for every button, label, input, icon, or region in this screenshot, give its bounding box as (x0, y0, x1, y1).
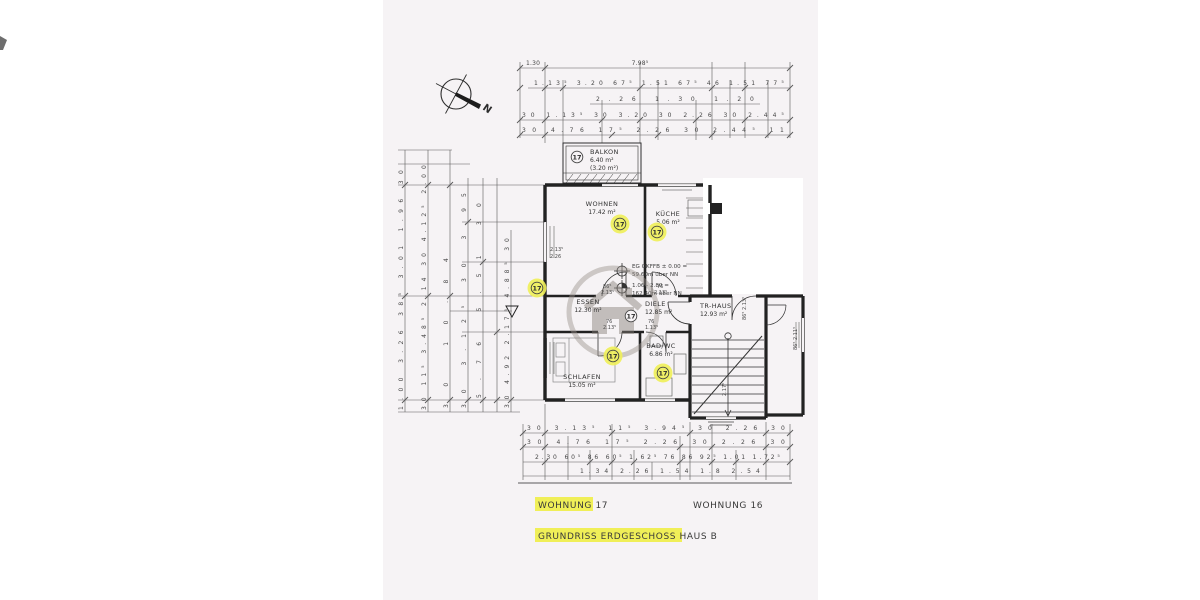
room-area-note-balkon: (3.20 m²) (590, 165, 618, 172)
room-area-wohnen: 17.42 m² (588, 209, 616, 216)
unit-badge-highlighted: 17 (648, 223, 667, 242)
scanned-floorplan-page: N 1.30 7.98⁵ 1.13⁵ 3.20 67⁵ 1.51 67⁵ 46 … (0, 0, 1200, 600)
dim-text: 7.98⁵ (632, 60, 649, 67)
room-name-balkon: BALKON (590, 148, 619, 156)
whiteout-area (703, 178, 803, 294)
size-tag: 2.13⁵ (654, 290, 667, 296)
size-tag: 2.17⁵ (722, 383, 728, 396)
unit-number: 17 (658, 370, 667, 378)
unit-badge-highlighted: 17 (654, 364, 673, 383)
unit-number: 17 (572, 154, 581, 162)
unit-badge-plain: 17 (625, 310, 637, 322)
wall-pier (710, 203, 722, 214)
size-tag: 2.26 (550, 254, 561, 260)
unit-badge-highlighted: 17 (604, 347, 623, 366)
room-area-essen: 12.30 m² (574, 307, 602, 314)
unit-number: 17 (608, 353, 617, 361)
dim-text: 1.34 2.26 1.54 1.8 2.54 (580, 468, 760, 475)
room-area-schlafen: 15.05 m² (568, 382, 596, 389)
unit-number: 17 (652, 229, 661, 237)
room-name-wohnen: WOHNEN (586, 200, 619, 208)
room-name-essen: ESSEN (576, 298, 599, 306)
room-name-trhaus: TR-HAUS (699, 302, 732, 310)
level-line: EG OKFFB ± 0.00 = (632, 264, 687, 270)
scan-corner-mark (0, 36, 7, 50)
room-area-balkon: 6.40 m² (590, 157, 614, 164)
size-tag: 86⁵ 2.11⁵ (793, 327, 799, 350)
room-name-bad: BAD/WC (646, 342, 676, 350)
room-name-diele: DIELE (645, 300, 666, 308)
caption-wohnung-17: WOHNUNG 17 (538, 501, 608, 511)
size-tag: 2.13⁵ (603, 325, 616, 331)
floorplan-drawing: N 1.30 7.98⁵ 1.13⁵ 3.20 67⁵ 1.51 67⁵ 46 … (0, 0, 1200, 600)
dim-text: 1.30 (526, 60, 540, 67)
unit-badge-highlighted: 17 (528, 279, 547, 298)
dim-text: 30 3.13⁵ 11⁵ 3.94⁵ 30 2.26 30 (527, 425, 785, 432)
size-tag: 1.13⁵ (645, 325, 658, 331)
dim-text: 1.13⁵ 3.20 67⁵ 1.51 67⁵ 46 1.51 77⁵ (534, 80, 784, 87)
room-name-schlafen: SCHLAFEN (563, 373, 601, 381)
unit-number: 17 (626, 313, 635, 321)
caption-grundriss: GRUNDRISS ERDGESCHOSS HAUS B (538, 532, 717, 542)
room-area-bad: 6.86 m² (649, 351, 673, 358)
unit-badge-plain: 17 (571, 151, 583, 163)
size-tag: 2.13⁵ (550, 247, 563, 253)
room-area-trhaus: 12.93 m² (700, 311, 728, 318)
room-area-diele: 12.85 m² (645, 309, 673, 316)
room-name-kueche: KÜCHE (656, 209, 680, 218)
size-tag: 86⁵ 2.13⁵ (742, 297, 748, 320)
unit-badge-highlighted: 17 (611, 215, 630, 234)
unit-number: 17 (532, 285, 541, 293)
size-tag: 2.13⁵ (601, 290, 614, 296)
unit-number: 17 (615, 221, 624, 229)
caption-wohnung-16: WOHNUNG 16 (693, 501, 763, 511)
